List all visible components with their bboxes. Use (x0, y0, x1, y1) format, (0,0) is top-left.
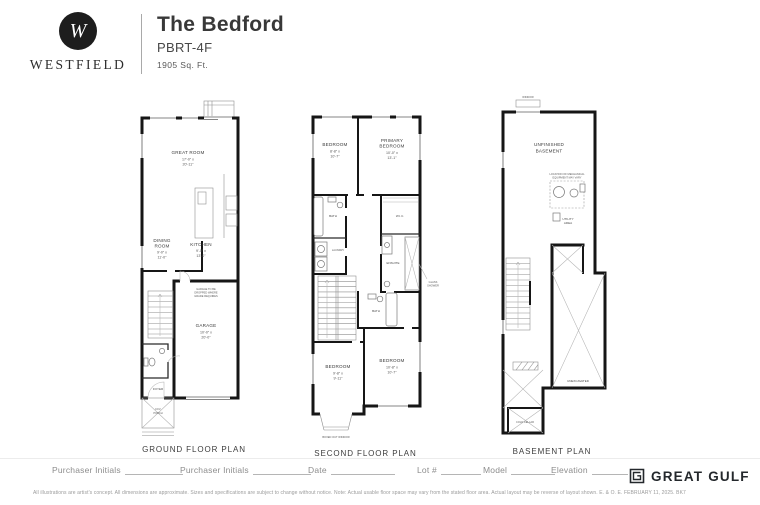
signature-line (441, 465, 481, 475)
lot-number-field: Lot # (417, 465, 481, 475)
westfield-logo-icon: W (59, 12, 97, 50)
kitchen-island (195, 174, 237, 238)
ground-floor-plan: GREAT ROOM 17'-0" x 20'-11" DINING ROOM … (138, 96, 250, 454)
callout-note: SHOWER (427, 284, 439, 288)
plan-title: The Bedford (157, 13, 284, 37)
room-dim: 13'-0" (196, 254, 206, 258)
room-dim: 20'-0" (201, 336, 211, 340)
square-footage: 1905 Sq. Ft. (157, 60, 284, 70)
footer-divider (0, 458, 760, 459)
great-gulf-icon (629, 468, 645, 484)
garage-note: DROPPED WHERE (194, 290, 217, 294)
plan-caption: BASEMENT PLAN (496, 447, 608, 456)
room-label: GREAT ROOM (172, 150, 205, 155)
signature-line (592, 465, 628, 475)
garage-note: GRADE REQUIRES (194, 294, 218, 298)
rear-landing (204, 101, 234, 117)
interior-walls (508, 245, 583, 433)
partition-walls (313, 234, 420, 238)
unexcavated-cross (503, 245, 605, 433)
room-dim: 9'-0" x (196, 249, 206, 253)
plan-caption: SECOND FLOOR PLAN (308, 449, 423, 458)
toilet-icon (144, 348, 165, 366)
room-label: PORCH (153, 411, 162, 415)
signature-line (511, 465, 555, 475)
room-label: GARAGE (196, 323, 217, 328)
stairs (318, 276, 356, 340)
door-swings (148, 271, 190, 398)
elevation-field: Elevation (551, 465, 628, 475)
field-label: Purchaser Initials (52, 465, 121, 475)
interior-walls (313, 117, 420, 414)
brand-name: WESTFIELD (22, 57, 134, 73)
mech-note: EQUIPMENT MAY VARY (552, 175, 581, 179)
builder-brand: W WESTFIELD (22, 12, 134, 73)
room-dim: 10'-7" (330, 155, 340, 159)
room-label: UNFINISHED (534, 142, 565, 147)
room-dim: 10'-0" x (200, 331, 212, 335)
purchaser-initials-field-1: Purchaser Initials (52, 465, 183, 475)
room-dim: 10'-7" (387, 371, 397, 375)
signature-line (125, 465, 183, 475)
field-label: Model (483, 465, 507, 475)
bay-window (320, 414, 352, 430)
room-label: BEDROOM (322, 142, 347, 147)
great-gulf-logo: GREAT GULF (629, 468, 750, 484)
bay-note: BOXED OUT WINDOW (322, 435, 350, 439)
room-dim: 20'-11" (183, 163, 195, 167)
stairs (148, 291, 173, 338)
laundry-machines (315, 242, 327, 271)
window-note: WINDOW (522, 95, 534, 99)
purchaser-initials-field-2: Purchaser Initials (180, 465, 311, 475)
room-label: FOYER (153, 387, 164, 391)
mech-note: LOCATION OF MECHANICAL (549, 172, 585, 176)
floor-plan-sheet: W WESTFIELD The Bedford PBRT-4F 1905 Sq.… (0, 0, 760, 505)
room-label: DINING (153, 238, 171, 243)
header-divider (141, 14, 142, 74)
model-field: Model (483, 465, 555, 475)
second-floor-drawing: BEDROOM 8'-8" x 10'-7" PRIMARY BEDROOM 1… (308, 96, 443, 446)
ground-floor-drawing: GREAT ROOM 17'-0" x 20'-11" DINING ROOM … (138, 96, 250, 442)
room-label: LAUNDRY (332, 248, 345, 252)
second-floor-plan: BEDROOM 8'-8" x 10'-7" PRIMARY BEDROOM 1… (308, 96, 443, 458)
date-field: Date (308, 465, 395, 475)
room-label: BASEMENT (536, 149, 563, 154)
logo-monogram: W (70, 21, 87, 41)
room-dim: 10'-8" x (386, 366, 398, 370)
room-label: W.I.C. (396, 214, 404, 218)
field-label: Elevation (551, 465, 588, 475)
room-label: PRIMARY (381, 138, 403, 143)
room-dim: 17'-0" x (182, 158, 194, 162)
room-label: ROOM (154, 244, 169, 249)
great-gulf-wordmark: GREAT GULF (651, 469, 750, 484)
room-dim: 8'-8" x (330, 150, 340, 154)
room-dim: 13'-1" (387, 156, 397, 160)
room-dim: 10'-0" x (386, 151, 398, 155)
room-dim: 11'-0" (158, 256, 168, 260)
field-label: Purchaser Initials (180, 465, 249, 475)
room-dim: 9'-8" x (333, 372, 343, 376)
room-label: BEDROOM (379, 358, 404, 363)
walls (313, 117, 420, 414)
room-label: BEDROOM (379, 144, 404, 149)
field-label: Date (308, 465, 327, 475)
stairs-arrow (516, 262, 520, 328)
room-label: COLD CELLAR (516, 420, 534, 424)
stairs-arrow (158, 294, 162, 336)
basement-drawing: WINDOW (496, 90, 608, 444)
disclaimer-text: All illustrations are artist's concept. … (33, 490, 753, 496)
room-label: ENSUITE (386, 261, 399, 265)
plan-caption: GROUND FLOOR PLAN (138, 445, 250, 454)
garage-note: GARAGE TO BE (196, 287, 216, 291)
room-label: UNEXCAVATED (567, 379, 590, 383)
title-block: The Bedford PBRT-4F 1905 Sq. Ft. (157, 13, 284, 70)
callout-note: GLASS (429, 280, 438, 284)
window-well (516, 100, 540, 107)
basement-plan: WINDOW (496, 90, 608, 456)
signature-line (331, 465, 395, 475)
covered-porch (142, 398, 174, 436)
room-dim: 9'-0" x (157, 251, 167, 255)
room-label: AREA (564, 221, 572, 225)
room-label: BATH (372, 309, 380, 313)
signature-line (253, 465, 311, 475)
room-label: KITCHEN (190, 242, 212, 247)
furnace-icon (553, 184, 585, 221)
model-code: PBRT-4F (157, 40, 284, 55)
closet-shelves (383, 198, 418, 202)
field-label: Lot # (417, 465, 437, 475)
room-label: BATH (329, 214, 337, 218)
room-label: BEDROOM (325, 364, 350, 369)
room-dim: 9'-11" (334, 377, 344, 381)
room-label: COV. (155, 407, 161, 411)
hatch-strip (513, 362, 538, 370)
